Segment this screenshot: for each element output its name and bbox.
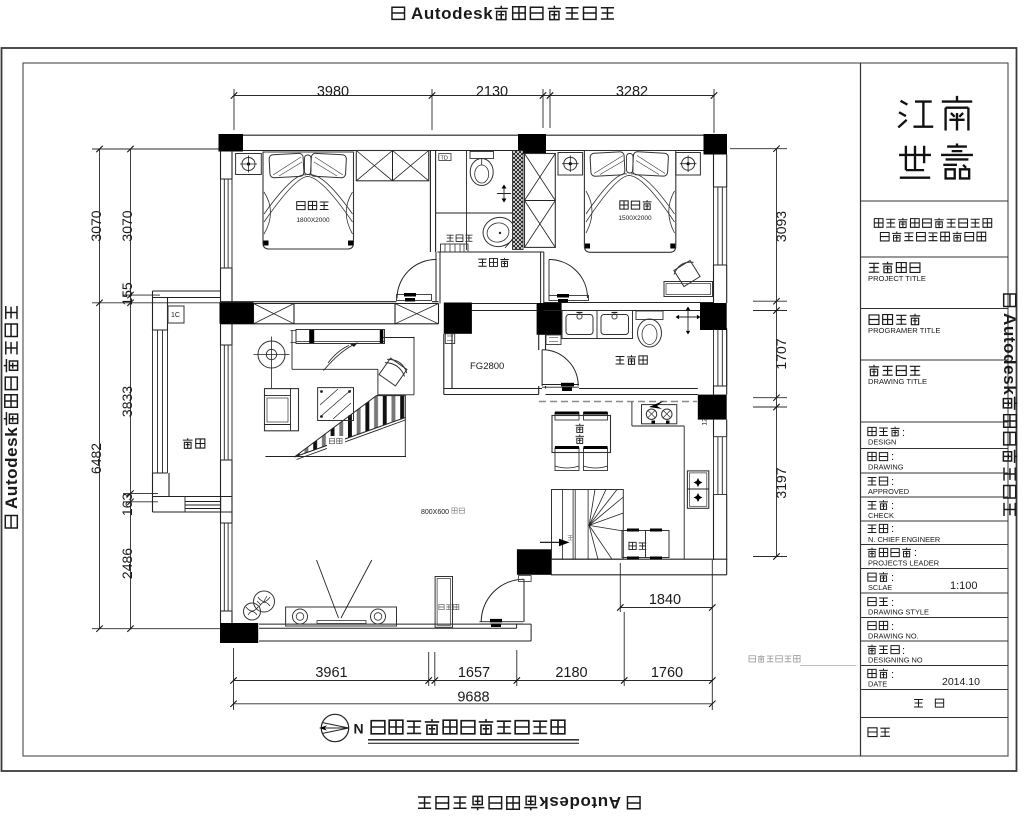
svg-text:N: N [354, 721, 364, 737]
svg-text:2486: 2486 [119, 548, 135, 579]
svg-text:DRAWING NO.: DRAWING NO. [868, 632, 919, 641]
svg-text:1C: 1C [171, 312, 180, 319]
svg-text::: : [902, 427, 905, 439]
svg-text:155: 155 [119, 282, 135, 306]
svg-text:1800X2000: 1800X2000 [296, 217, 330, 224]
svg-text:N. CHIEF ENGINEER: N. CHIEF ENGINEER [868, 535, 940, 544]
svg-text:1760: 1760 [651, 665, 683, 681]
svg-text:9688: 9688 [457, 690, 489, 706]
svg-text:3070: 3070 [88, 210, 104, 241]
svg-text:Autodesk: Autodesk [411, 4, 493, 23]
svg-text:3833: 3833 [119, 386, 135, 417]
svg-text:Autodesk: Autodesk [1000, 313, 1019, 395]
svg-text:1:100: 1:100 [950, 580, 978, 592]
svg-text:Autodesk: Autodesk [539, 793, 621, 812]
svg-text:2180: 2180 [555, 665, 587, 681]
svg-text:DRAWING: DRAWING [868, 463, 904, 472]
svg-text:800X600: 800X600 [421, 509, 449, 516]
svg-text:2014.10: 2014.10 [942, 676, 980, 688]
svg-text:1707: 1707 [773, 338, 789, 369]
svg-text:3070: 3070 [119, 210, 135, 241]
svg-text:DRAWING TITLE: DRAWING TITLE [868, 377, 927, 386]
svg-text:DESIGNING NO: DESIGNING NO [868, 656, 923, 665]
svg-text::: : [891, 451, 894, 463]
svg-text::: : [891, 523, 894, 535]
svg-text:PROGRAMER TITLE: PROGRAMER TITLE [868, 326, 940, 335]
svg-text:DATE: DATE [868, 680, 887, 689]
svg-text:3961: 3961 [315, 665, 347, 681]
svg-text:1840: 1840 [649, 592, 681, 608]
svg-text::: : [914, 547, 917, 559]
svg-text:FG2800: FG2800 [470, 361, 504, 372]
svg-text:2130: 2130 [476, 84, 508, 100]
svg-text:TD: TD [441, 155, 448, 161]
svg-text:1500X2000: 1500X2000 [618, 215, 652, 222]
svg-text:PROJECT TITLE: PROJECT TITLE [868, 274, 926, 283]
svg-text:163: 163 [119, 493, 135, 517]
svg-text:SCLAE: SCLAE [868, 583, 892, 592]
svg-text:6482: 6482 [88, 443, 104, 474]
svg-text:PROJECTS LEADER: PROJECTS LEADER [868, 559, 939, 568]
svg-text:CHECK: CHECK [868, 511, 894, 520]
svg-text::: : [891, 669, 894, 681]
svg-text:1657: 1657 [458, 665, 490, 681]
svg-text:12: 12 [702, 418, 709, 426]
svg-text:DRAWING STYLE: DRAWING STYLE [868, 608, 929, 617]
svg-text:3197: 3197 [773, 467, 789, 498]
svg-text:3980: 3980 [317, 84, 349, 100]
svg-text:3282: 3282 [616, 84, 648, 100]
svg-text:DESIGN: DESIGN [868, 438, 896, 447]
svg-text:3093: 3093 [773, 211, 789, 242]
svg-text:APPROVED: APPROVED [868, 487, 909, 496]
svg-text:Autodesk: Autodesk [2, 427, 21, 509]
